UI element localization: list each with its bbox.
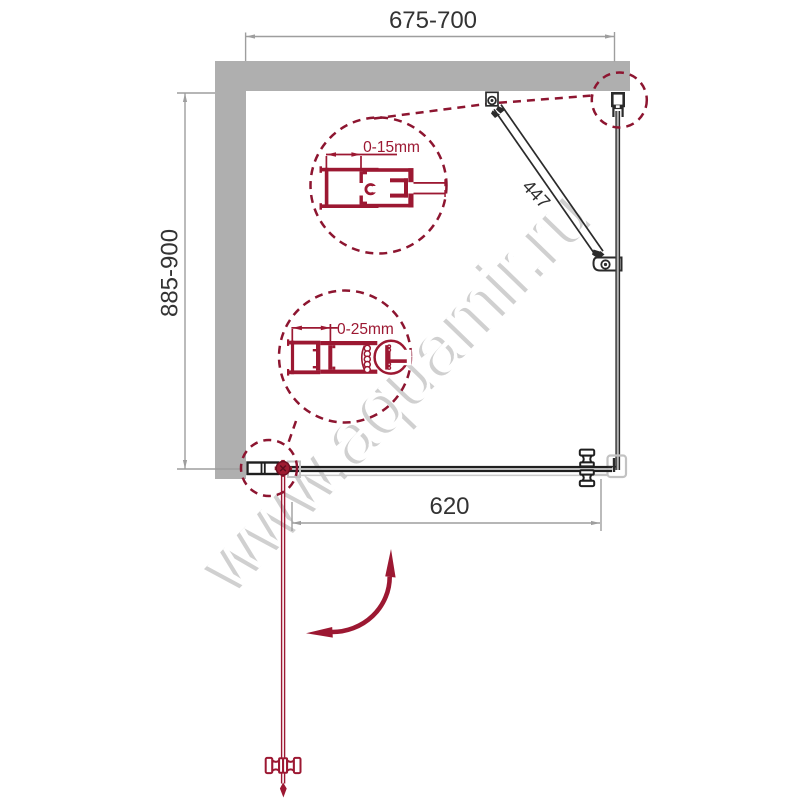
svg-text:0-15mm: 0-15mm bbox=[363, 139, 420, 156]
svg-text:885-900: 885-900 bbox=[157, 229, 184, 317]
svg-text:620: 620 bbox=[429, 493, 469, 520]
svg-text:www.aquamir.ru: www.aquamir.ru bbox=[186, 170, 610, 605]
svg-text:675-700: 675-700 bbox=[389, 7, 477, 34]
svg-text:0-25mm: 0-25mm bbox=[337, 321, 394, 338]
